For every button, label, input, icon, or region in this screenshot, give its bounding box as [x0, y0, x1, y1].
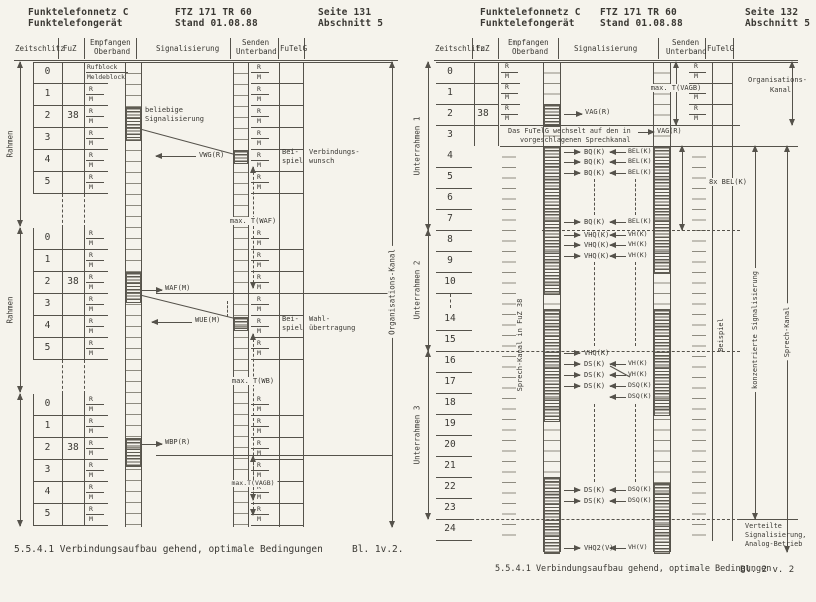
- beispiel-label-1: Bei-: [282, 148, 299, 156]
- max-t-waf-label: max. T(WAF): [227, 217, 279, 225]
- send-r-cell: R: [257, 296, 261, 303]
- fuz-value: 38: [62, 111, 84, 122]
- send-m-cell: M: [257, 96, 261, 103]
- slot-number: 24: [436, 524, 464, 535]
- receive-r-cell: R: [89, 152, 93, 159]
- rx-signal-arrow: [610, 364, 626, 365]
- rx-signal-label: VH(K): [628, 252, 648, 259]
- col-unterband: Unterband: [236, 48, 277, 57]
- slot-number: 23: [436, 503, 464, 514]
- tx-signal-arrow: [564, 364, 580, 365]
- slot-number: 1: [33, 421, 62, 432]
- organisation-channel-label-2: Kanal: [770, 86, 791, 94]
- handover-message-line-1: Das FuTelG wechselt auf den in: [508, 128, 631, 136]
- slot-number: 0: [33, 67, 62, 78]
- tx-signal-label: BQ(K): [584, 169, 605, 177]
- section-number: Abschnitt 5: [745, 19, 810, 30]
- rx-signal-label: VH(K): [628, 371, 648, 378]
- send-m-cell: M: [694, 73, 698, 80]
- tx-signal-label: VHQ(K): [584, 252, 609, 260]
- wue-label: WUE(M): [195, 316, 220, 324]
- receive-r-cell: R: [89, 340, 93, 347]
- receive-m-cell: M: [89, 184, 93, 191]
- tx-signal-arrow: [564, 173, 580, 174]
- receive-r-cell: R: [89, 484, 93, 491]
- rx-signal-label: DSQ(K): [628, 382, 651, 389]
- tx-signal-label: DS(K): [584, 371, 605, 379]
- receive-m-cell: M: [89, 328, 93, 335]
- receive-r-cell: R: [89, 418, 93, 425]
- slot-number: 4: [33, 155, 62, 166]
- tx-signal-label: VHQ(K): [584, 241, 609, 249]
- tx-signal-label: DS(K): [584, 382, 605, 390]
- rx-signal-label: DSQ(K): [628, 497, 651, 504]
- tx-signal-label: DS(K): [584, 486, 605, 494]
- send-m-cell: M: [257, 74, 261, 81]
- doc-date: Stand 01.08.88: [600, 19, 683, 30]
- speech-channel-label: Sprech-Kanal: [783, 304, 791, 361]
- col-futelg: FuTelG: [707, 45, 734, 54]
- receive-r-cell: R: [505, 105, 509, 112]
- receive-r-cell: R: [89, 274, 93, 281]
- receive-r-cell: R: [89, 506, 93, 513]
- col-oberband: Oberband: [94, 48, 130, 57]
- rx-signal-arrow: [610, 397, 626, 398]
- rx-signal-label: BEL(K): [628, 218, 651, 225]
- beispiel-label-2: spiel: [282, 157, 303, 165]
- rx-signal-arrow: [610, 501, 626, 502]
- send-m-cell: M: [694, 94, 698, 101]
- send-m-cell: M: [257, 262, 261, 269]
- slot-number: 0: [33, 399, 62, 410]
- send-r-cell: R: [257, 252, 261, 259]
- slot-number: 3: [33, 465, 62, 476]
- slot-number: 6: [436, 193, 464, 204]
- send-m-cell: M: [257, 494, 261, 501]
- slot-number: 14: [436, 314, 464, 325]
- vwg-label: VWG(R): [199, 151, 224, 159]
- send-m-cell: M: [257, 240, 261, 247]
- slot-number: 3: [33, 299, 62, 310]
- slot-number: 4: [33, 487, 62, 498]
- slot-number: 7: [436, 214, 464, 225]
- receive-m-cell: M: [89, 350, 93, 357]
- waf-label: WAF(M): [165, 284, 190, 292]
- col-fuz: FuZ: [476, 45, 490, 54]
- slot-number: 10: [436, 277, 464, 288]
- send-r-cell: R: [257, 418, 261, 425]
- receive-m-cell: M: [89, 472, 93, 479]
- rx-signal-arrow: [610, 222, 626, 223]
- send-r-cell: R: [257, 108, 261, 115]
- network-title-2: Funktelefongerät: [28, 19, 123, 30]
- send-r-cell: R: [257, 130, 261, 137]
- beliebige-label-1: beliebige: [145, 106, 183, 114]
- tx-signal-arrow: [564, 375, 580, 376]
- tx-signal-arrow: [564, 501, 580, 502]
- rx-signal-arrow: [610, 256, 626, 257]
- send-r-cell: R: [257, 506, 261, 513]
- figure-caption: 5.5.4.1 Verbindungsaufbau gehend, optima…: [14, 545, 323, 556]
- slot-number: 21: [436, 461, 464, 472]
- section-number: Abschnitt 5: [318, 19, 383, 30]
- send-r-cell: R: [257, 274, 261, 281]
- rx-signal-label: VH(K): [628, 360, 648, 367]
- rx-signal-label: VH(V): [628, 544, 648, 551]
- tx-signal-label: DS(K): [584, 360, 605, 368]
- tx-signal-label: BQ(K): [584, 148, 605, 156]
- rx-signal-arrow: [610, 235, 626, 236]
- send-r-cell: R: [257, 86, 261, 93]
- receive-m-cell: M: [89, 140, 93, 147]
- tx-signal-label: VHQ(K): [584, 231, 609, 239]
- slot-number: 0: [33, 233, 62, 244]
- frame-label-2: Rahmen: [6, 293, 15, 326]
- receive-m-cell: M: [89, 96, 93, 103]
- receive-m-cell: M: [505, 73, 509, 80]
- figure-caption: 5.5.4.1 Verbindungsaufbau gehend, optima…: [495, 565, 771, 575]
- doc-date: Stand 01.08.88: [175, 19, 258, 30]
- slot-number: 3: [436, 130, 464, 141]
- tx-signal-arrow: [564, 386, 580, 387]
- concentrated-signalling-label: konzentrierte Signalisierung: [751, 268, 759, 392]
- distributed-signalling-label-3: Analog-Betrieb: [745, 541, 802, 549]
- receive-m-cell: M: [89, 162, 93, 169]
- panel-page-131: Funktelefonnetz C Funktelefongerät FTZ 1…: [0, 0, 408, 602]
- wahl-label-2: übertragung: [309, 324, 355, 332]
- slot-number: 4: [436, 151, 464, 162]
- wbp-label: WBP(R): [165, 438, 190, 446]
- tx-signal-arrow: [564, 256, 580, 257]
- receive-m-cell: M: [505, 94, 509, 101]
- receive-r-cell: R: [89, 230, 93, 237]
- send-m-cell: M: [257, 118, 261, 125]
- receive-m-cell: M: [89, 406, 93, 413]
- receive-m-cell: M: [505, 115, 509, 122]
- speech-channel-fuz-label: Sprech-Kanal in FuZ 38: [516, 299, 524, 392]
- send-r-cell: R: [257, 230, 261, 237]
- slot-number: 2: [33, 443, 62, 454]
- receive-r-cell: R: [89, 296, 93, 303]
- tx-signal-arrow: [564, 490, 580, 491]
- tx-signal-label: DS(K): [584, 497, 605, 505]
- rx-signal-label: VH(K): [628, 241, 648, 248]
- rufblock-label: Rufblock: [87, 64, 117, 71]
- slot-number: 4: [33, 321, 62, 332]
- beispiel-label-1: Bei-: [282, 315, 299, 323]
- fuz-value: 38: [62, 277, 84, 288]
- slot-number: 15: [436, 335, 464, 346]
- subframe-label-3: Unterrahmen 3: [413, 403, 422, 468]
- beliebige-label-2: Signalisierung: [145, 115, 204, 123]
- send-m-cell: M: [257, 284, 261, 291]
- slot-number: 9: [436, 256, 464, 267]
- receive-m-cell: M: [89, 284, 93, 291]
- wahl-label-1: Wahl-: [309, 315, 330, 323]
- max-t-vagb-label: max. T(VAGB): [648, 84, 705, 92]
- receive-r-cell: R: [89, 130, 93, 137]
- send-r-cell: R: [257, 462, 261, 469]
- col-futelg: FuTelG: [280, 45, 307, 54]
- col-zeitschlitz: Zeitschlitz: [15, 45, 65, 54]
- slot-number: 16: [436, 356, 464, 367]
- handover-message-line-2: vorgeschlagenen Sprechkanal: [520, 137, 631, 145]
- subframe-label-1: Unterrahmen 1: [413, 114, 422, 179]
- receive-r-cell: R: [89, 174, 93, 181]
- slot-number: 8: [436, 235, 464, 246]
- col-unterband: Unterband: [666, 48, 707, 57]
- receive-r-cell: R: [89, 86, 93, 93]
- rx-signal-label: BEL(K): [628, 158, 651, 165]
- send-m-cell: M: [257, 140, 261, 147]
- col-signalisierung: Signalisierung: [156, 45, 219, 54]
- tx-signal-label: BQ(K): [584, 218, 605, 226]
- receive-m-cell: M: [89, 262, 93, 269]
- subframe-label-2: Unterrahmen 2: [413, 258, 422, 323]
- receive-r-cell: R: [89, 440, 93, 447]
- tx-signal-arrow: [564, 222, 580, 223]
- slot-number: 3: [33, 133, 62, 144]
- handover-vag-label: VAG(R): [657, 128, 682, 136]
- tx-signal-arrow: [564, 235, 580, 236]
- panel-page-132: Funktelefonnetz C Funktelefongerät FTZ 1…: [408, 0, 816, 602]
- tx-signal-label: BQ(K): [584, 158, 605, 166]
- max-t-wb-label: max. T(WB): [229, 377, 277, 385]
- fuz-value: 38: [62, 443, 84, 454]
- slot-number: 18: [436, 398, 464, 409]
- rx-signal-arrow: [610, 245, 626, 246]
- send-m-cell: M: [257, 450, 261, 457]
- slot-number: 22: [436, 482, 464, 493]
- bel-8x-label: 8x BEL(K): [706, 178, 750, 186]
- slot-number: 2: [33, 111, 62, 122]
- send-r-cell: R: [257, 440, 261, 447]
- rx-signal-arrow: [610, 173, 626, 174]
- slot-number: 5: [33, 343, 62, 354]
- receive-r-cell: R: [89, 318, 93, 325]
- slot-number: 1: [33, 255, 62, 266]
- send-m-cell: M: [694, 115, 698, 122]
- receive-m-cell: M: [89, 428, 93, 435]
- send-r-cell: R: [257, 318, 261, 325]
- slot-number: 1: [33, 89, 62, 100]
- fuz-value: 38: [470, 109, 496, 120]
- slot-number: 2: [436, 109, 464, 120]
- col-fuz: FuZ: [63, 45, 77, 54]
- tx-signal-arrow: [564, 162, 580, 163]
- distributed-signalling-label-1: Verteilte: [745, 523, 782, 531]
- slot-number: 5: [33, 509, 62, 520]
- receive-m-cell: M: [89, 450, 93, 457]
- beispiel-label: Beispiel: [717, 318, 725, 352]
- send-r-cell: R: [257, 396, 261, 403]
- send-r-cell: R: [257, 152, 261, 159]
- organisation-channel-label-1: Organisations-: [748, 76, 807, 84]
- send-r-cell: R: [257, 174, 261, 181]
- receive-r-cell: R: [89, 462, 93, 469]
- rx-signal-label: BEL(K): [628, 148, 651, 155]
- distributed-signalling-label-2: Signalisierung,: [745, 532, 806, 540]
- receive-m-cell: M: [89, 240, 93, 247]
- receive-r-cell: R: [89, 108, 93, 115]
- receive-r-cell: R: [505, 84, 509, 91]
- slot-number: 17: [436, 377, 464, 388]
- send-r-cell: R: [694, 63, 698, 70]
- tx-signal-arrow: [564, 245, 580, 246]
- rx-signal-label: BEL(K): [628, 169, 651, 176]
- rx-signal-arrow: [610, 386, 626, 387]
- send-m-cell: M: [257, 306, 261, 313]
- tx-signal-arrow: [564, 152, 580, 153]
- verbindungswunsch-label-2: wunsch: [309, 157, 334, 165]
- rx-signal-label: DSQ(K): [628, 393, 651, 400]
- sheet-number: Bl. 1v.2.: [352, 545, 403, 556]
- vag-label: VAG(R): [585, 108, 610, 116]
- rx-signal-label: VH(K): [628, 231, 648, 238]
- send-r-cell: R: [694, 105, 698, 112]
- col-oberband: Oberband: [512, 48, 548, 57]
- max-t-vagb-label: max.T(VAGB): [228, 480, 277, 487]
- send-m-cell: M: [257, 516, 261, 523]
- send-m-cell: M: [257, 184, 261, 191]
- send-m-cell: M: [257, 428, 261, 435]
- organisation-channel-label: Organisations-Kanal: [388, 246, 397, 338]
- slot-number: 0: [436, 67, 464, 78]
- rx-signal-arrow: [610, 162, 626, 163]
- slot-number: 2: [33, 277, 62, 288]
- rx-signal-arrow: [610, 490, 626, 491]
- send-m-cell: M: [257, 328, 261, 335]
- receive-m-cell: M: [89, 516, 93, 523]
- receive-m-cell: M: [89, 118, 93, 125]
- rx-signal-arrow: [610, 152, 626, 153]
- receive-m-cell: M: [89, 306, 93, 313]
- meldeblock-label: Meldeblock: [87, 74, 125, 81]
- receive-r-cell: R: [89, 252, 93, 259]
- rx-signal-label: DSQ(K): [628, 486, 651, 493]
- verbindungswunsch-label-1: Verbindungs-: [309, 148, 360, 156]
- tx-signal-arrow: [564, 548, 580, 549]
- rx-signal-arrow: [610, 375, 626, 376]
- slot-number: 20: [436, 440, 464, 451]
- sheet-number: Bl. 2 v. 2: [740, 565, 794, 575]
- tx-signal-label: VHQ(K): [584, 349, 609, 357]
- document-page: Funktelefonnetz C Funktelefongerät FTZ 1…: [0, 0, 816, 602]
- receive-r-cell: R: [505, 63, 509, 70]
- beispiel-label-2: spiel: [282, 324, 303, 332]
- tx-signal-label: VHQ2(V): [584, 544, 614, 552]
- col-signalisierung: Signalisierung: [574, 45, 637, 54]
- send-m-cell: M: [257, 162, 261, 169]
- send-m-cell: M: [257, 406, 261, 413]
- send-r-cell: R: [257, 64, 261, 71]
- receive-m-cell: M: [89, 494, 93, 501]
- slot-number: 5: [436, 172, 464, 183]
- slot-number: 5: [33, 177, 62, 188]
- receive-r-cell: R: [89, 396, 93, 403]
- send-r-cell: R: [257, 340, 261, 347]
- frame-label-1: Rahmen: [6, 127, 15, 160]
- slot-number: 19: [436, 419, 464, 430]
- network-title-2: Funktelefongerät: [480, 19, 575, 30]
- tx-signal-arrow: [564, 353, 580, 354]
- slot-number: 1: [436, 88, 464, 99]
- send-m-cell: M: [257, 350, 261, 357]
